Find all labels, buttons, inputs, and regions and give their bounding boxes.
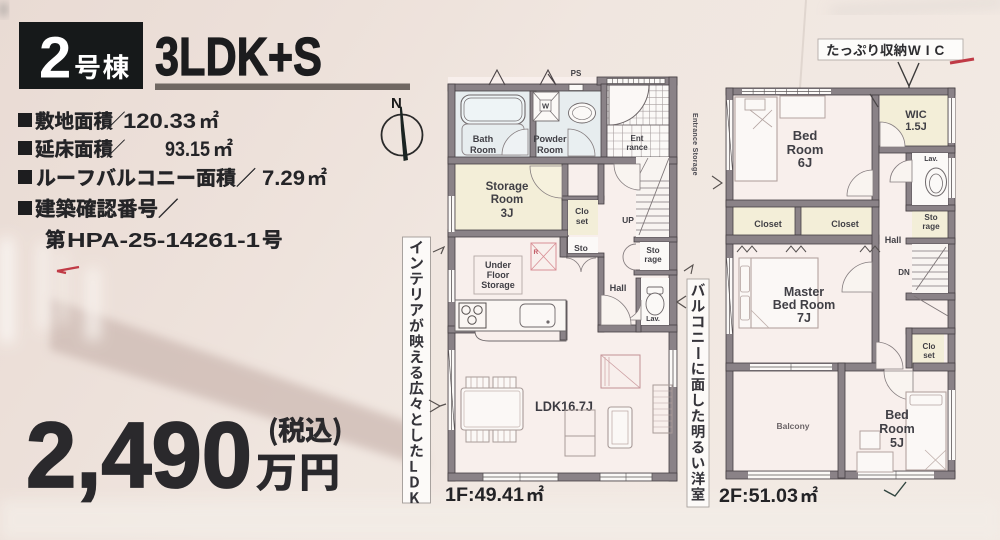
- svg-text:Clo: Clo: [575, 206, 589, 216]
- svg-text:WIC: WIC: [908, 43, 949, 58]
- svg-text:Closet: Closet: [831, 219, 859, 229]
- svg-text:7J: 7J: [797, 311, 811, 325]
- svg-text:Lav.: Lav.: [924, 156, 938, 163]
- svg-text:6J: 6J: [798, 155, 812, 170]
- svg-text:Room: Room: [879, 422, 914, 436]
- svg-text:Floor: Floor: [487, 270, 510, 280]
- svg-text:1.5J: 1.5J: [905, 121, 926, 133]
- svg-text:2: 2: [39, 26, 71, 91]
- svg-text:3LDK+S: 3LDK+S: [155, 27, 322, 87]
- svg-text:Hall: Hall: [610, 283, 627, 293]
- svg-text:rage: rage: [922, 222, 940, 231]
- svg-text:DN: DN: [898, 268, 910, 277]
- svg-text:5J: 5J: [890, 436, 904, 450]
- svg-text:Master: Master: [784, 285, 824, 299]
- svg-text:LDK16.7J: LDK16.7J: [535, 399, 593, 414]
- svg-text:Room: Room: [537, 145, 563, 155]
- svg-text:Bath: Bath: [473, 134, 494, 144]
- svg-text:Under: Under: [485, 260, 512, 270]
- svg-text:3J: 3J: [501, 208, 514, 220]
- svg-text:Ent: Ent: [631, 134, 644, 143]
- svg-text:Sto: Sto: [574, 243, 588, 253]
- svg-text:Balcony: Balcony: [776, 421, 809, 431]
- svg-text:set: set: [576, 216, 588, 226]
- svg-text:1F:49.41: 1F:49.41: [445, 484, 524, 506]
- svg-text:WIC: WIC: [905, 109, 926, 121]
- svg-text:PS: PS: [571, 69, 582, 78]
- svg-text:93.15: 93.15: [165, 138, 210, 161]
- svg-text:Bed Room: Bed Room: [773, 298, 836, 312]
- svg-text:Bed: Bed: [793, 128, 818, 143]
- svg-text:HPA-25-14261-1: HPA-25-14261-1: [67, 229, 260, 252]
- svg-text:Storage: Storage: [486, 181, 529, 193]
- svg-text:R: R: [534, 249, 539, 256]
- svg-text:N: N: [391, 95, 402, 112]
- svg-text:Powder: Powder: [533, 134, 567, 144]
- svg-text:Sto: Sto: [924, 213, 937, 222]
- svg-text:rage: rage: [644, 255, 662, 264]
- svg-text:Hall: Hall: [885, 235, 902, 245]
- svg-text:Room: Room: [470, 145, 496, 155]
- svg-text:Closet: Closet: [754, 219, 782, 229]
- svg-text:set: set: [923, 351, 935, 360]
- svg-text:2F:51.03: 2F:51.03: [719, 485, 798, 507]
- svg-text:UP: UP: [622, 215, 634, 225]
- svg-text:Entrance Storage: Entrance Storage: [691, 113, 698, 176]
- svg-text:W: W: [542, 102, 550, 111]
- svg-text:120.33: 120.33: [123, 109, 196, 133]
- svg-text:Lav.: Lav.: [646, 314, 660, 323]
- svg-text:rance: rance: [626, 143, 648, 152]
- svg-text:Sto: Sto: [646, 246, 659, 255]
- svg-text:Clo: Clo: [923, 342, 936, 351]
- svg-text:2,490: 2,490: [26, 403, 252, 507]
- svg-text:Room: Room: [491, 194, 524, 206]
- svg-text:Storage: Storage: [481, 280, 515, 290]
- svg-text:7.29: 7.29: [262, 167, 305, 190]
- svg-text:Bed: Bed: [885, 408, 909, 422]
